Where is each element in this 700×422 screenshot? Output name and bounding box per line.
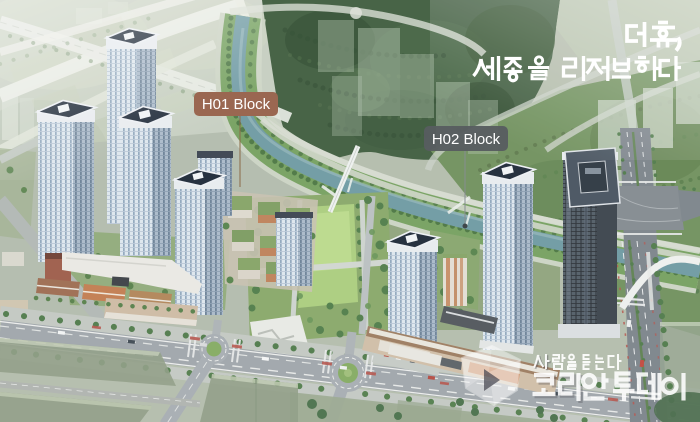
svg-text:H01 Block: H01 Block — [202, 96, 271, 113]
svg-text:H02 Block: H02 Block — [432, 131, 501, 148]
